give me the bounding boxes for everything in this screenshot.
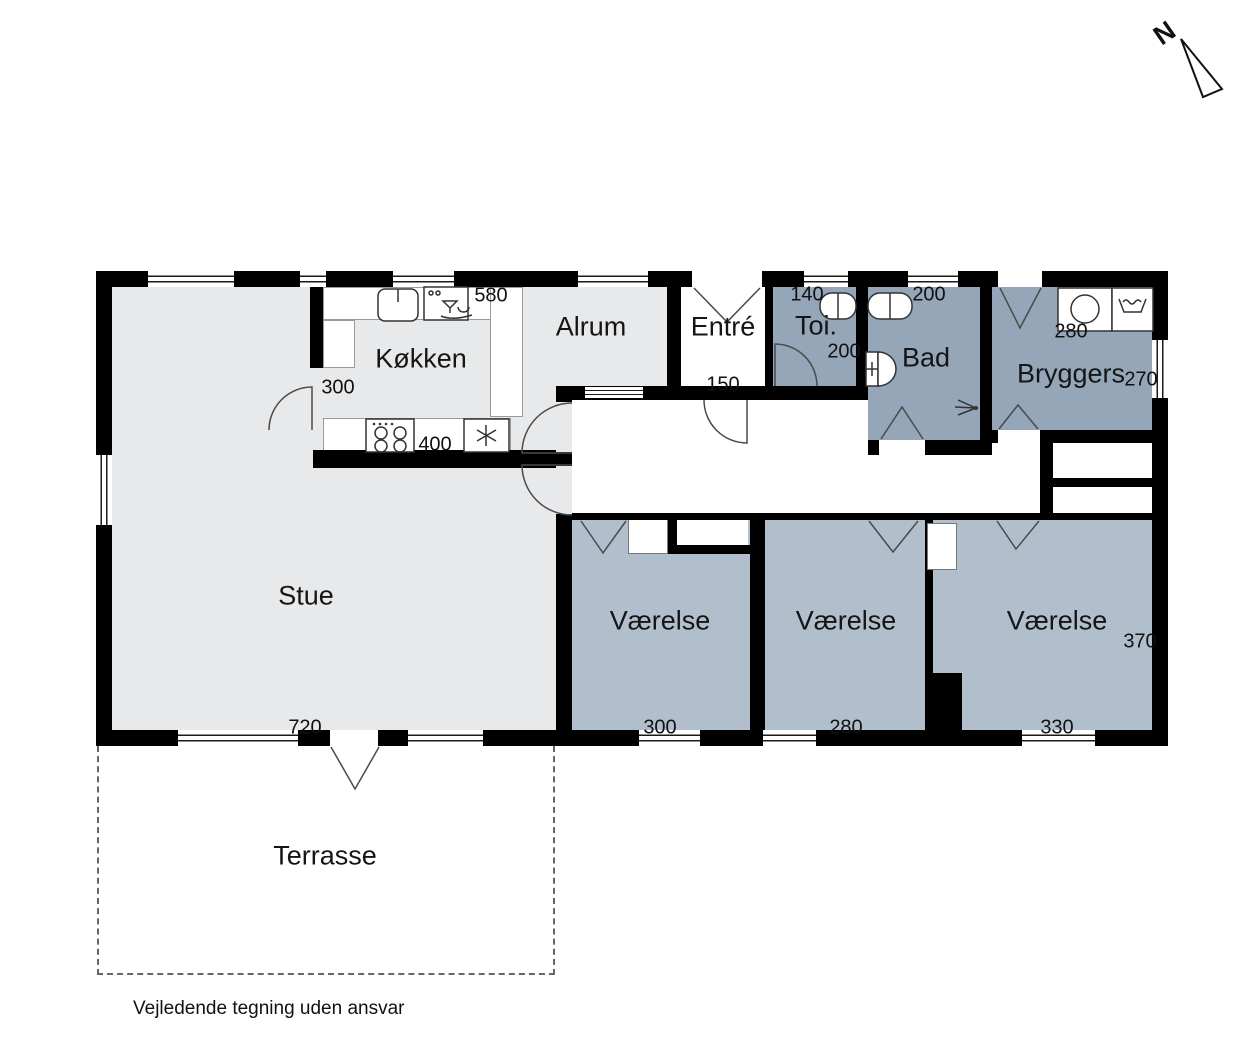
wall-segment — [765, 271, 773, 400]
room-label-alrum: Alrum — [556, 312, 627, 343]
entre-front-door-opening — [692, 271, 762, 287]
interior-window-icon — [585, 387, 643, 398]
closet-lower — [1053, 487, 1152, 513]
room-label-vaerelse-2: Værelse — [796, 606, 897, 637]
disclaimer-text: Vejledende tegning uden ansvar — [133, 998, 405, 1020]
wall-segment — [1040, 430, 1152, 443]
dimension-label: 580 — [474, 285, 507, 308]
window-icon — [578, 271, 648, 287]
wall-segment — [868, 440, 879, 455]
room-label-stue: Stue — [278, 581, 334, 612]
dimension-label: 200 — [912, 284, 945, 307]
window-icon — [393, 271, 454, 287]
niche-vaerelse-2 — [927, 523, 957, 570]
wall-segment — [1040, 513, 1045, 520]
dimension-label: 330 — [1040, 717, 1073, 740]
wall-segment — [1040, 443, 1053, 520]
wall-segment — [856, 271, 868, 386]
window-icon — [763, 730, 816, 746]
dimension-label: 140 — [790, 284, 823, 307]
dimension-label: 300 — [321, 377, 354, 400]
wall-segment — [668, 513, 677, 554]
wall-segment — [1053, 478, 1152, 487]
room-label-kokken: Køkken — [375, 344, 467, 375]
wall-segment — [627, 513, 868, 520]
room-label-vaerelse-3: Værelse — [1007, 606, 1108, 637]
room-label-terrasse: Terrasse — [273, 841, 377, 872]
terrasse-door-opening — [330, 730, 378, 746]
wall-segment — [817, 386, 856, 400]
wall-segment — [925, 673, 962, 746]
kitchen-counter-lower — [323, 418, 511, 452]
room-label-entre: Entré — [691, 312, 756, 343]
wall-segment — [667, 271, 681, 400]
wall-segment — [919, 513, 996, 520]
window-icon — [300, 271, 326, 287]
room-label-bad: Bad — [902, 343, 950, 374]
dimension-label: 270 — [1124, 369, 1157, 392]
window-icon — [408, 730, 483, 746]
wall-segment — [980, 271, 992, 443]
window-icon — [178, 730, 298, 746]
dimension-label: 370 — [1123, 631, 1156, 654]
stue-door-opening-lower — [556, 466, 572, 514]
room-label-bryggers: Bryggers — [1017, 359, 1125, 390]
wall-segment — [556, 513, 580, 520]
wall-segment — [925, 440, 992, 455]
wall-segment — [677, 545, 750, 554]
room-label-toi: Toi. — [795, 311, 837, 342]
dimension-label: 200 — [827, 341, 860, 364]
wall-segment — [992, 430, 998, 443]
dimension-label: 150 — [706, 374, 739, 397]
closet-upper — [1053, 443, 1152, 478]
compass-north-label: N — [1148, 15, 1182, 52]
window-icon — [96, 455, 112, 525]
dimension-label: 300 — [643, 717, 676, 740]
room-label-vaerelse-1: Værelse — [610, 606, 711, 637]
floor-plan: N Stue Køkken Alrum Entré Toi. Bad Brygg… — [0, 0, 1250, 1046]
kitchen-counter-left — [323, 320, 355, 368]
dimension-label: 280 — [1054, 321, 1087, 344]
closet-vaerelse-1 — [628, 518, 668, 554]
north-arrow-icon — [1181, 39, 1222, 97]
window-icon — [148, 271, 234, 287]
dimension-label: 280 — [829, 717, 862, 740]
dimension-label: 720 — [288, 717, 321, 740]
wall-segment — [750, 513, 765, 746]
stue-door-opening-upper — [556, 402, 572, 452]
wall-segment — [925, 572, 933, 673]
bryggers-door-opening — [998, 271, 1042, 287]
dimension-label: 400 — [418, 434, 451, 457]
